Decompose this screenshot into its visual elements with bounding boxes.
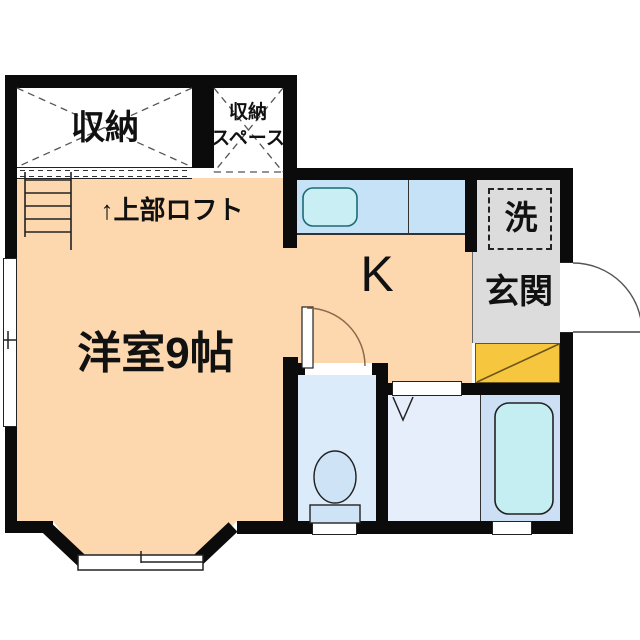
sink-icon: [303, 188, 357, 226]
washer-label: 洗: [503, 200, 539, 236]
closet-track-hatch-icon: [20, 171, 190, 177]
closet-space-label-line2: スペース: [211, 128, 285, 149]
entrance-door-icon: [573, 263, 640, 332]
bathtub-icon: [495, 403, 553, 514]
floorplan-symbols: [0, 0, 640, 640]
kitchen-label: K: [352, 247, 402, 302]
western-room-label: 洋室9帖: [58, 330, 253, 378]
bath-door-swing-icon: [393, 397, 413, 420]
closet-space-label-line1: 収納: [229, 102, 267, 123]
toilet-door-icon: [302, 307, 365, 368]
entrance-step-diagonal-icon: [477, 344, 559, 382]
entrance-label: 玄関: [483, 274, 555, 311]
loft-label: ↑上部ロフト: [92, 196, 252, 225]
toilet-icon: [310, 451, 360, 523]
closet-label: 収納: [40, 110, 170, 147]
closet-space-label: 収納 スペース: [210, 100, 286, 151]
floorplan-canvas: 収納 収納 スペース ↑上部ロフト 洋室9帖 K 洗 玄関: [0, 0, 640, 640]
loft-ladder-icon: [25, 172, 71, 250]
